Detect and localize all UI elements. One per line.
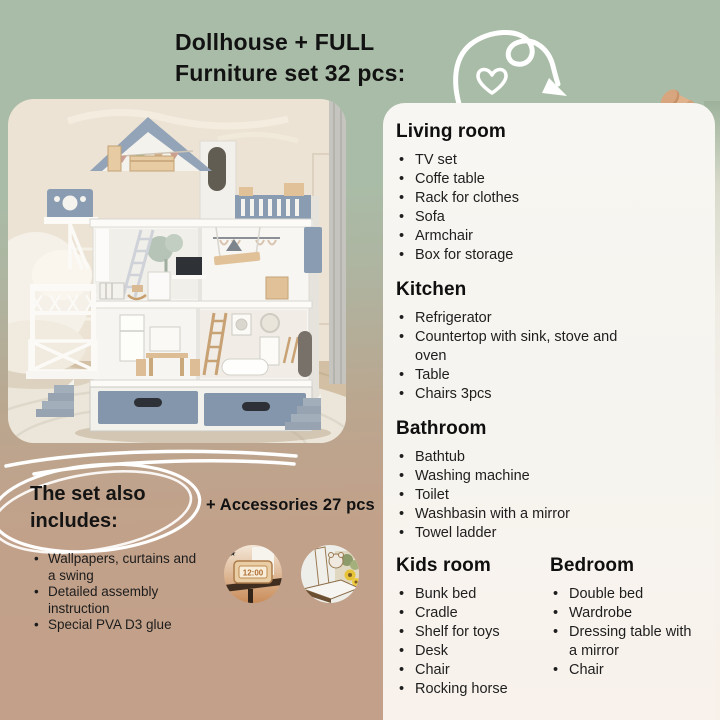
list-item: Wardrobe: [550, 604, 695, 623]
list-item: Detailed assembly instruction: [33, 584, 203, 617]
list-item: Refrigerator: [396, 309, 648, 328]
dollhouse-photo: [8, 99, 346, 443]
room-heading: Kitchen: [396, 279, 701, 301]
title-line-1: Dollhouse + FULL: [175, 29, 374, 55]
list-item: Cradle: [396, 604, 536, 623]
list-item: Washbasin with a mirror: [396, 505, 648, 524]
list-item: Double bed: [550, 585, 695, 604]
room-heading: Living room: [396, 121, 701, 143]
clock-time: 12:00: [243, 569, 264, 578]
list-item: Chairs 3pcs: [396, 385, 648, 404]
includes-heading: The set also includes:: [30, 481, 178, 535]
wooden-shelf-illustration: [301, 545, 359, 603]
room-section-kids-room: Kids room Bunk bed Cradle Shelf for toys…: [396, 555, 550, 699]
room-item-list: Bunk bed Cradle Shelf for toys Desk Chai…: [396, 585, 536, 699]
wooden-clock-illustration: 12:00 ★: [224, 545, 282, 603]
list-item: Shelf for toys: [396, 623, 536, 642]
list-item: Toilet: [396, 486, 648, 505]
room-heading: Kids room: [396, 555, 550, 577]
includes-list: Wallpapers, curtains and a swing Detaile…: [33, 551, 203, 634]
list-item: Bathtub: [396, 448, 648, 467]
list-item: Wallpapers, curtains and a swing: [33, 551, 203, 584]
list-item: Table: [396, 366, 648, 385]
list-item: Sofa: [396, 208, 648, 227]
room-section-kitchen: Kitchen Refrigerator Countertop with sin…: [396, 279, 701, 404]
list-item: Dressing table with a mirror: [550, 623, 695, 661]
list-item: Chair: [550, 661, 695, 680]
list-item: Chair: [396, 661, 536, 680]
list-item: Desk: [396, 642, 536, 661]
dollhouse-photo-illustration: [8, 99, 346, 443]
room-item-list: Bathtub Washing machine Toilet Washbasin…: [396, 448, 648, 543]
room-item-list: TV set Coffe table Rack for clothes Sofa…: [396, 151, 648, 265]
list-item: Bunk bed: [396, 585, 536, 604]
title-line-2: Furniture set 32 pcs:: [175, 60, 405, 86]
list-item: Rack for clothes: [396, 189, 648, 208]
list-item: Armchair: [396, 227, 648, 246]
dollhouse-infographic: Dollhouse + FULLFurniture set 32 pcs:: [0, 0, 720, 720]
room-section-living-room: Living room TV set Coffe table Rack for …: [396, 121, 701, 265]
list-item: Towel ladder: [396, 524, 648, 543]
list-item: Special PVA D3 glue: [33, 617, 203, 634]
room-item-list: Refrigerator Countertop with sink, stove…: [396, 309, 648, 404]
list-item: TV set: [396, 151, 648, 170]
room-item-list: Double bed Wardrobe Dressing table with …: [550, 585, 695, 680]
two-column-rooms: Kids room Bunk bed Cradle Shelf for toys…: [396, 555, 701, 699]
furniture-list-card: Living room TV set Coffe table Rack for …: [383, 103, 715, 720]
list-item: Coffe table: [396, 170, 648, 189]
room-section-bathroom: Bathroom Bathtub Washing machine Toilet …: [396, 418, 701, 543]
svg-text:★: ★: [229, 549, 236, 558]
list-item: Rocking horse: [396, 680, 536, 699]
list-item: Washing machine: [396, 467, 648, 486]
accessories-label: + Accessories 27 pcs: [206, 496, 375, 515]
room-heading: Bathroom: [396, 418, 701, 440]
page-title: Dollhouse + FULLFurniture set 32 pcs:: [175, 27, 405, 89]
room-heading: Bedroom: [550, 555, 700, 577]
accessory-photo-clock: 12:00 ★: [224, 545, 282, 603]
accessory-photo-shelf: [301, 545, 359, 603]
list-item: Box for storage: [396, 246, 648, 265]
room-section-bedroom: Bedroom Double bed Wardrobe Dressing tab…: [550, 555, 700, 699]
list-item: Countertop with sink, stove and oven: [396, 328, 648, 366]
